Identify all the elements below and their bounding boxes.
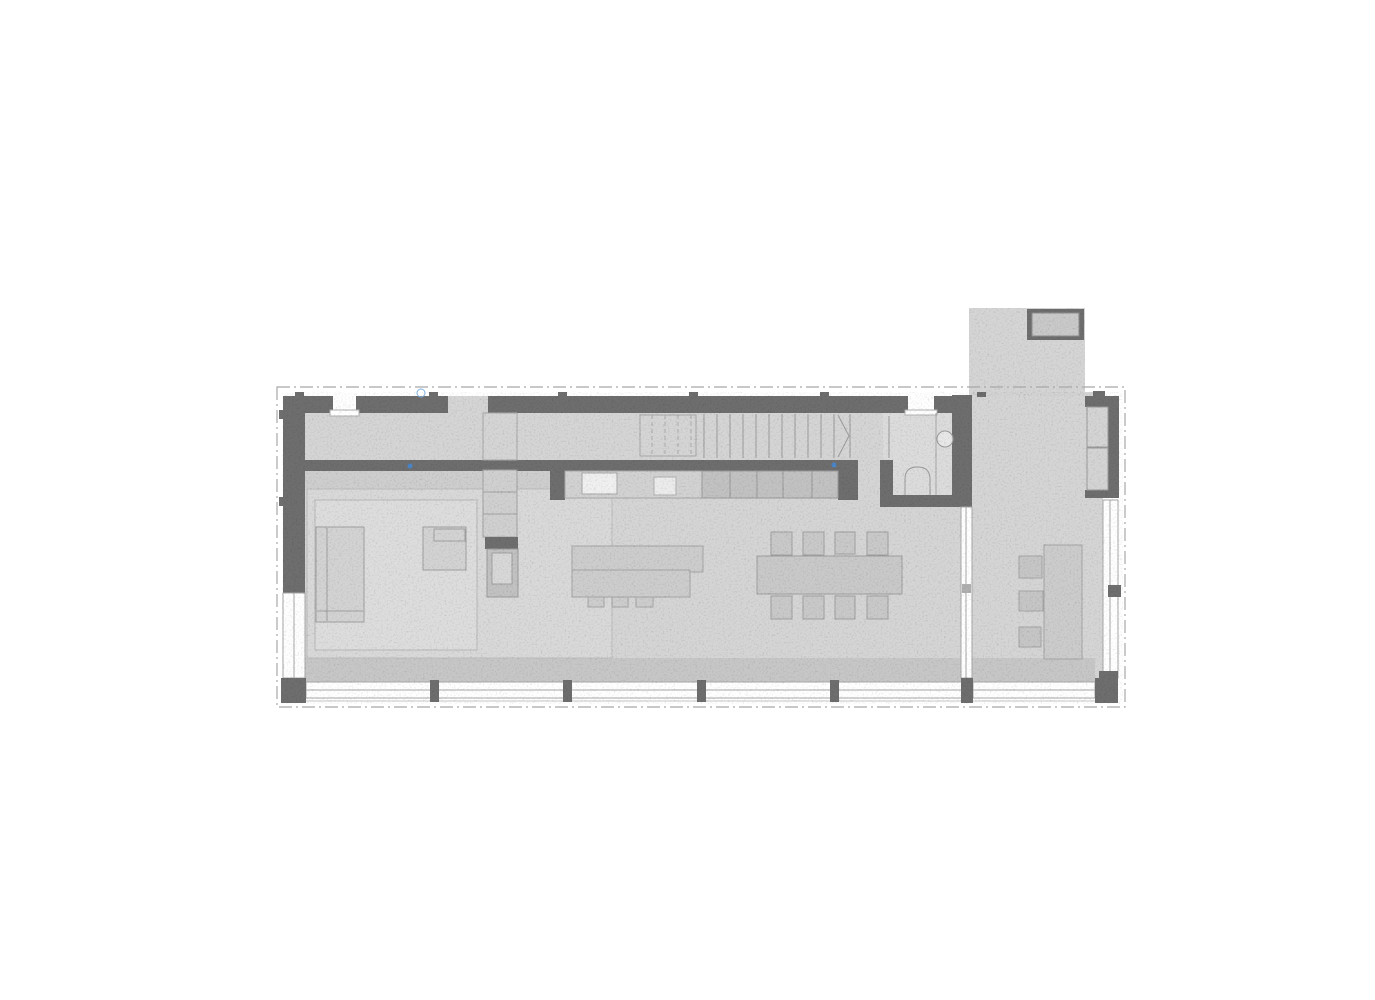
floor-plan xyxy=(0,0,1375,1000)
plan-shapes-layer xyxy=(277,308,1125,707)
concrete-texture-patio xyxy=(969,308,1085,396)
floor-plan-canvas xyxy=(0,0,1375,1000)
concrete-texture-main xyxy=(282,392,1123,704)
